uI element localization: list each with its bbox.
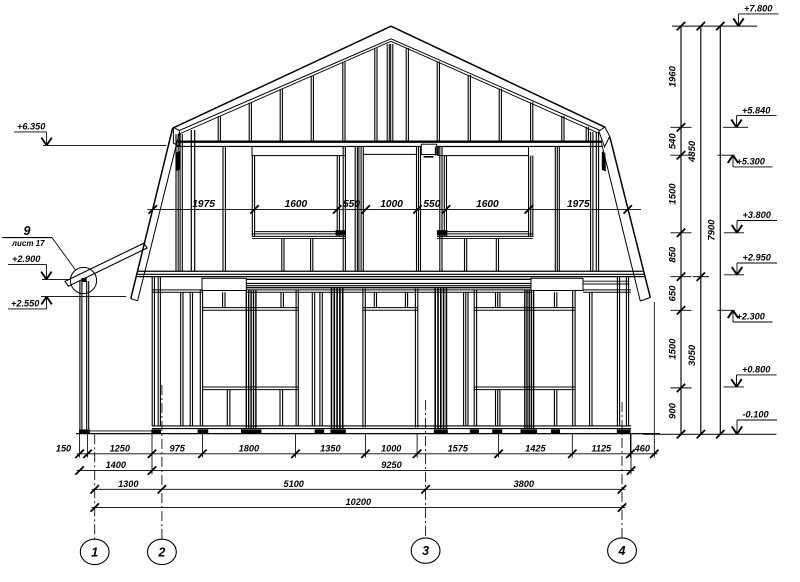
svg-text:+2.900: +2.900 [12, 254, 41, 264]
svg-text:1000: 1000 [380, 199, 403, 210]
svg-text:лист 17: лист 17 [11, 239, 45, 248]
svg-text:3800: 3800 [514, 479, 535, 489]
svg-text:+3.800: +3.800 [743, 210, 772, 220]
svg-text:1600: 1600 [476, 199, 499, 210]
svg-text:+7.800: +7.800 [744, 4, 773, 14]
svg-text:1600: 1600 [285, 199, 308, 210]
svg-text:1575: 1575 [448, 443, 469, 453]
svg-text:9: 9 [24, 224, 31, 238]
svg-text:550: 550 [423, 199, 440, 210]
svg-text:460: 460 [634, 443, 651, 453]
svg-text:4850: 4850 [687, 140, 698, 163]
svg-text:+5.840: +5.840 [742, 105, 771, 115]
svg-text:2: 2 [157, 545, 165, 559]
svg-text:+2.550: +2.550 [11, 299, 40, 309]
svg-text:+0.800: +0.800 [742, 365, 771, 375]
svg-text:1800: 1800 [239, 443, 260, 453]
svg-text:1500: 1500 [667, 338, 678, 360]
svg-text:975: 975 [170, 443, 186, 453]
svg-text:1975: 1975 [567, 199, 590, 210]
svg-text:7900: 7900 [707, 219, 718, 241]
svg-text:150: 150 [56, 443, 72, 453]
svg-text:3050: 3050 [687, 344, 698, 366]
svg-text:4: 4 [618, 544, 626, 558]
svg-text:540: 540 [667, 133, 678, 150]
svg-text:1125: 1125 [591, 443, 612, 453]
svg-text:1350: 1350 [320, 443, 341, 453]
svg-text:1975: 1975 [192, 199, 215, 210]
svg-text:9250: 9250 [381, 460, 402, 470]
svg-text:+2.950: +2.950 [743, 253, 772, 263]
svg-text:-0.100: -0.100 [743, 410, 770, 420]
svg-text:1960: 1960 [667, 65, 678, 87]
svg-text:10200: 10200 [346, 497, 372, 507]
svg-text:5100: 5100 [283, 479, 304, 489]
svg-text:1425: 1425 [525, 443, 546, 453]
svg-text:1500: 1500 [667, 183, 678, 205]
svg-text:+5.300: +5.300 [737, 157, 766, 167]
svg-text:+2.300: +2.300 [737, 312, 766, 322]
svg-text:1000: 1000 [381, 443, 402, 453]
svg-text:1: 1 [91, 545, 98, 559]
svg-text:3: 3 [422, 544, 429, 558]
svg-text:650: 650 [667, 285, 678, 302]
svg-text:850: 850 [667, 246, 678, 263]
svg-text:1300: 1300 [118, 479, 139, 489]
svg-text:900: 900 [667, 402, 678, 419]
svg-text:+6.350: +6.350 [17, 122, 46, 132]
svg-text:1400: 1400 [106, 460, 127, 470]
svg-text:1250: 1250 [110, 443, 131, 453]
svg-text:550: 550 [343, 199, 360, 210]
